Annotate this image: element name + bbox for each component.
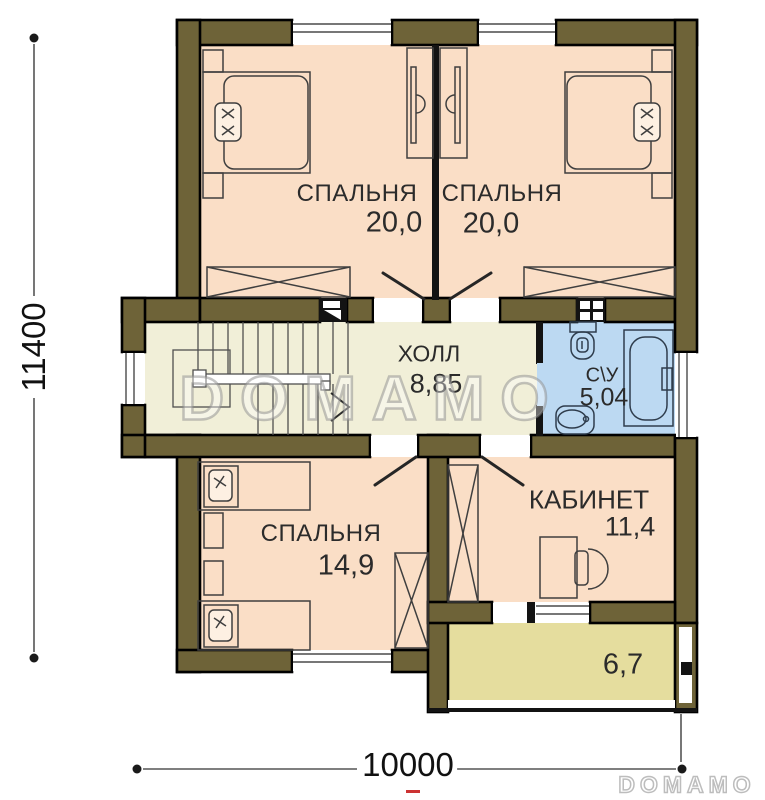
- room-label-bedroom-top-left: СПАЛЬНЯ: [297, 180, 418, 208]
- watermark-corner: DOMAMO: [618, 772, 755, 799]
- room-area-bathroom: 5,04: [580, 384, 629, 413]
- door-opening-bedroom-bottom: [371, 436, 417, 456]
- vent-shaft-icon: [319, 298, 347, 322]
- door-opening-balcony: [493, 603, 526, 622]
- door-opening-bedroom-top-left: [374, 299, 422, 321]
- floor-bedroom-top-right: [439, 45, 675, 298]
- room-label-bedroom-bottom: СПАЛЬНЯ: [261, 520, 382, 548]
- door-opening-bathroom: [537, 363, 543, 406]
- pillow: [634, 103, 660, 141]
- room-label-hall: ХОЛЛ: [398, 341, 460, 368]
- edge-mark: [406, 790, 420, 793]
- pillow: [215, 103, 241, 141]
- room-area-bedroom-top-right: 20,0: [463, 208, 519, 241]
- vertical-dimension-value: 11400: [15, 302, 52, 391]
- room-label-bedroom-top-right: СПАЛЬНЯ: [442, 180, 563, 208]
- floor-plan-drawing: [0, 0, 765, 800]
- pillow: [209, 610, 232, 641]
- room-area-office: 11,4: [605, 512, 656, 543]
- ventilation-grid-icon: [576, 298, 605, 322]
- room-area-balcony: 6,7: [603, 649, 643, 682]
- vertical-dimension-label: 11400: [15, 299, 53, 394]
- door-opening-office: [481, 436, 530, 456]
- room-area-hall: 8,85: [410, 369, 463, 400]
- horizontal-dimension-value: 10000: [362, 746, 454, 783]
- room-area-bedroom-bottom: 14,9: [318, 550, 374, 583]
- pillow: [209, 470, 232, 501]
- room-area-bedroom-top-left: 20,0: [366, 207, 422, 240]
- floor-plan: СПАЛЬНЯ 20,0 СПАЛЬНЯ 20,0 ХОЛЛ 8,85 С\У …: [0, 0, 765, 800]
- floor-bedroom-top-left: [200, 45, 433, 298]
- horizontal-dimension-label: 10000: [359, 746, 457, 784]
- door-opening-bedroom-top-right: [451, 299, 499, 321]
- floor-bedroom-bottom: [200, 457, 428, 650]
